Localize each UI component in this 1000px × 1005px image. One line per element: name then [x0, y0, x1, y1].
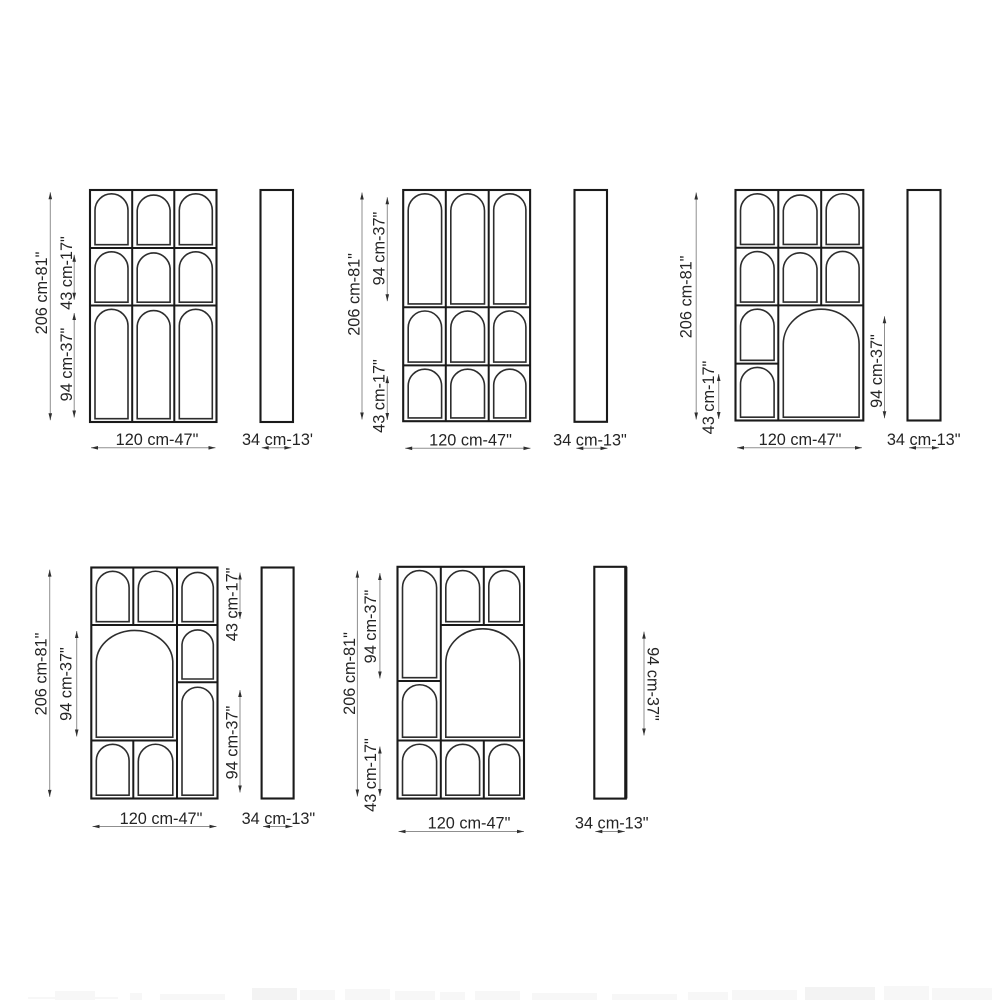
- svg-text:34 cm-13": 34 cm-13": [575, 815, 649, 833]
- svg-text:206 cm-81": 206 cm-81": [346, 253, 364, 336]
- svg-text:34 cm-13": 34 cm-13": [553, 432, 627, 450]
- svg-text:43 cm-17": 43 cm-17": [58, 236, 76, 310]
- svg-text:120 cm-47": 120 cm-47": [759, 431, 842, 449]
- svg-text:206 cm-81": 206 cm-81": [677, 255, 695, 338]
- svg-text:120 cm-47": 120 cm-47": [120, 810, 203, 828]
- svg-text:94 cm-37": 94 cm-37": [362, 589, 380, 663]
- svg-text:43 cm-17": 43 cm-17": [224, 567, 242, 641]
- svg-text:120 cm-47": 120 cm-47": [116, 431, 199, 449]
- svg-text:94 cm-37": 94 cm-37": [370, 211, 388, 285]
- svg-text:206 cm-81": 206 cm-81": [33, 632, 51, 715]
- svg-text:94 cm-37": 94 cm-37": [57, 647, 75, 721]
- svg-text:34 cm-13": 34 cm-13": [242, 810, 316, 828]
- svg-text:34 cm-13": 34 cm-13": [887, 431, 961, 449]
- svg-text:43 cm-17": 43 cm-17": [700, 360, 718, 434]
- svg-text:94 cm-37": 94 cm-37": [643, 647, 661, 721]
- svg-text:43 cm-17": 43 cm-17": [362, 738, 380, 812]
- svg-text:43 cm-17": 43 cm-17": [370, 359, 388, 433]
- svg-text:94 cm-37": 94 cm-37": [224, 705, 242, 779]
- svg-text:206 cm-81": 206 cm-81": [33, 251, 51, 334]
- svg-text:206 cm-81": 206 cm-81": [341, 632, 359, 715]
- svg-text:34 cm-13': 34 cm-13': [242, 431, 313, 449]
- svg-text:94 cm-37": 94 cm-37": [868, 334, 886, 408]
- svg-text:94 cm-37": 94 cm-37": [58, 327, 76, 401]
- svg-text:120 cm-47": 120 cm-47": [429, 432, 512, 450]
- svg-text:120 cm-47": 120 cm-47": [428, 815, 511, 833]
